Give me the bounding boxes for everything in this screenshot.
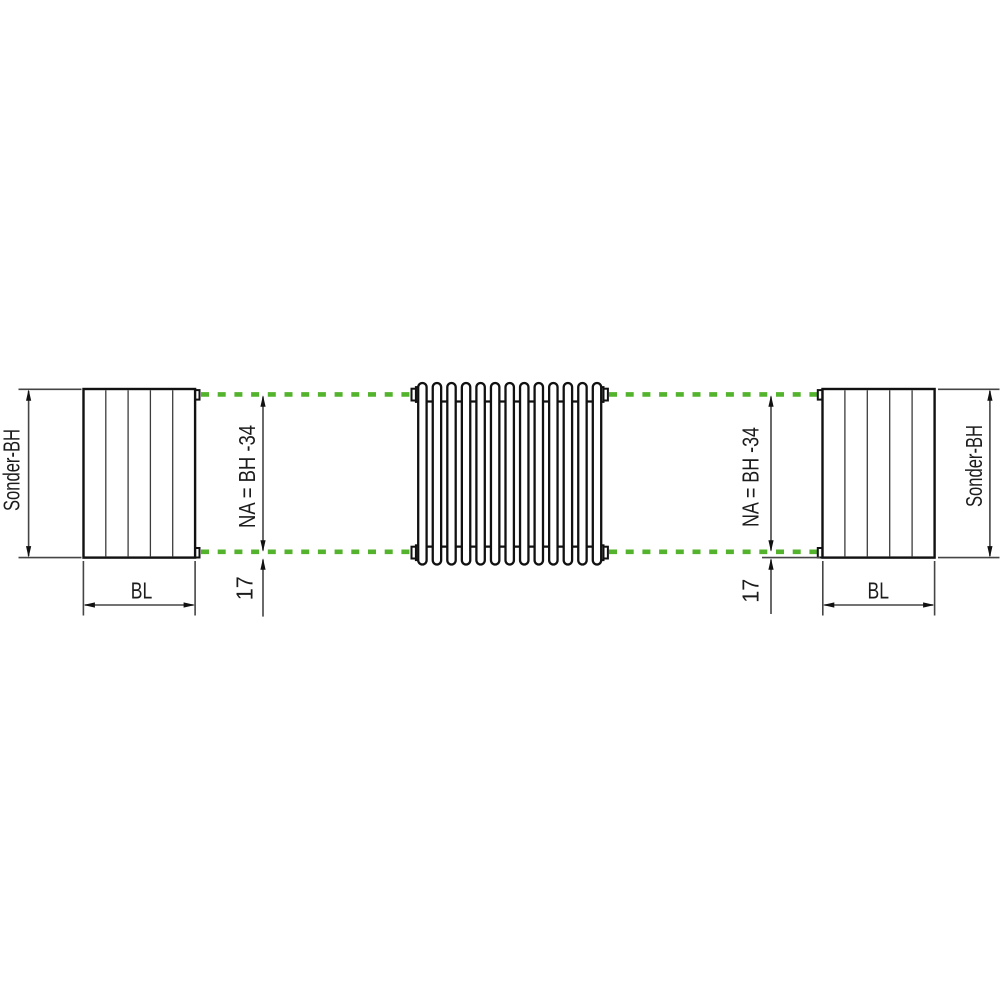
svg-text:NA = BH -34: NA = BH -34 — [234, 425, 260, 528]
svg-text:17: 17 — [231, 576, 257, 600]
svg-text:NA = BH -34: NA = BH -34 — [738, 427, 764, 527]
svg-text:BL: BL — [131, 578, 153, 604]
svg-text:BL: BL — [868, 578, 890, 604]
svg-text:Sonder-BH: Sonder-BH — [961, 425, 987, 507]
svg-text:Sonder-BH: Sonder-BH — [0, 429, 25, 511]
svg-text:17: 17 — [737, 579, 763, 603]
